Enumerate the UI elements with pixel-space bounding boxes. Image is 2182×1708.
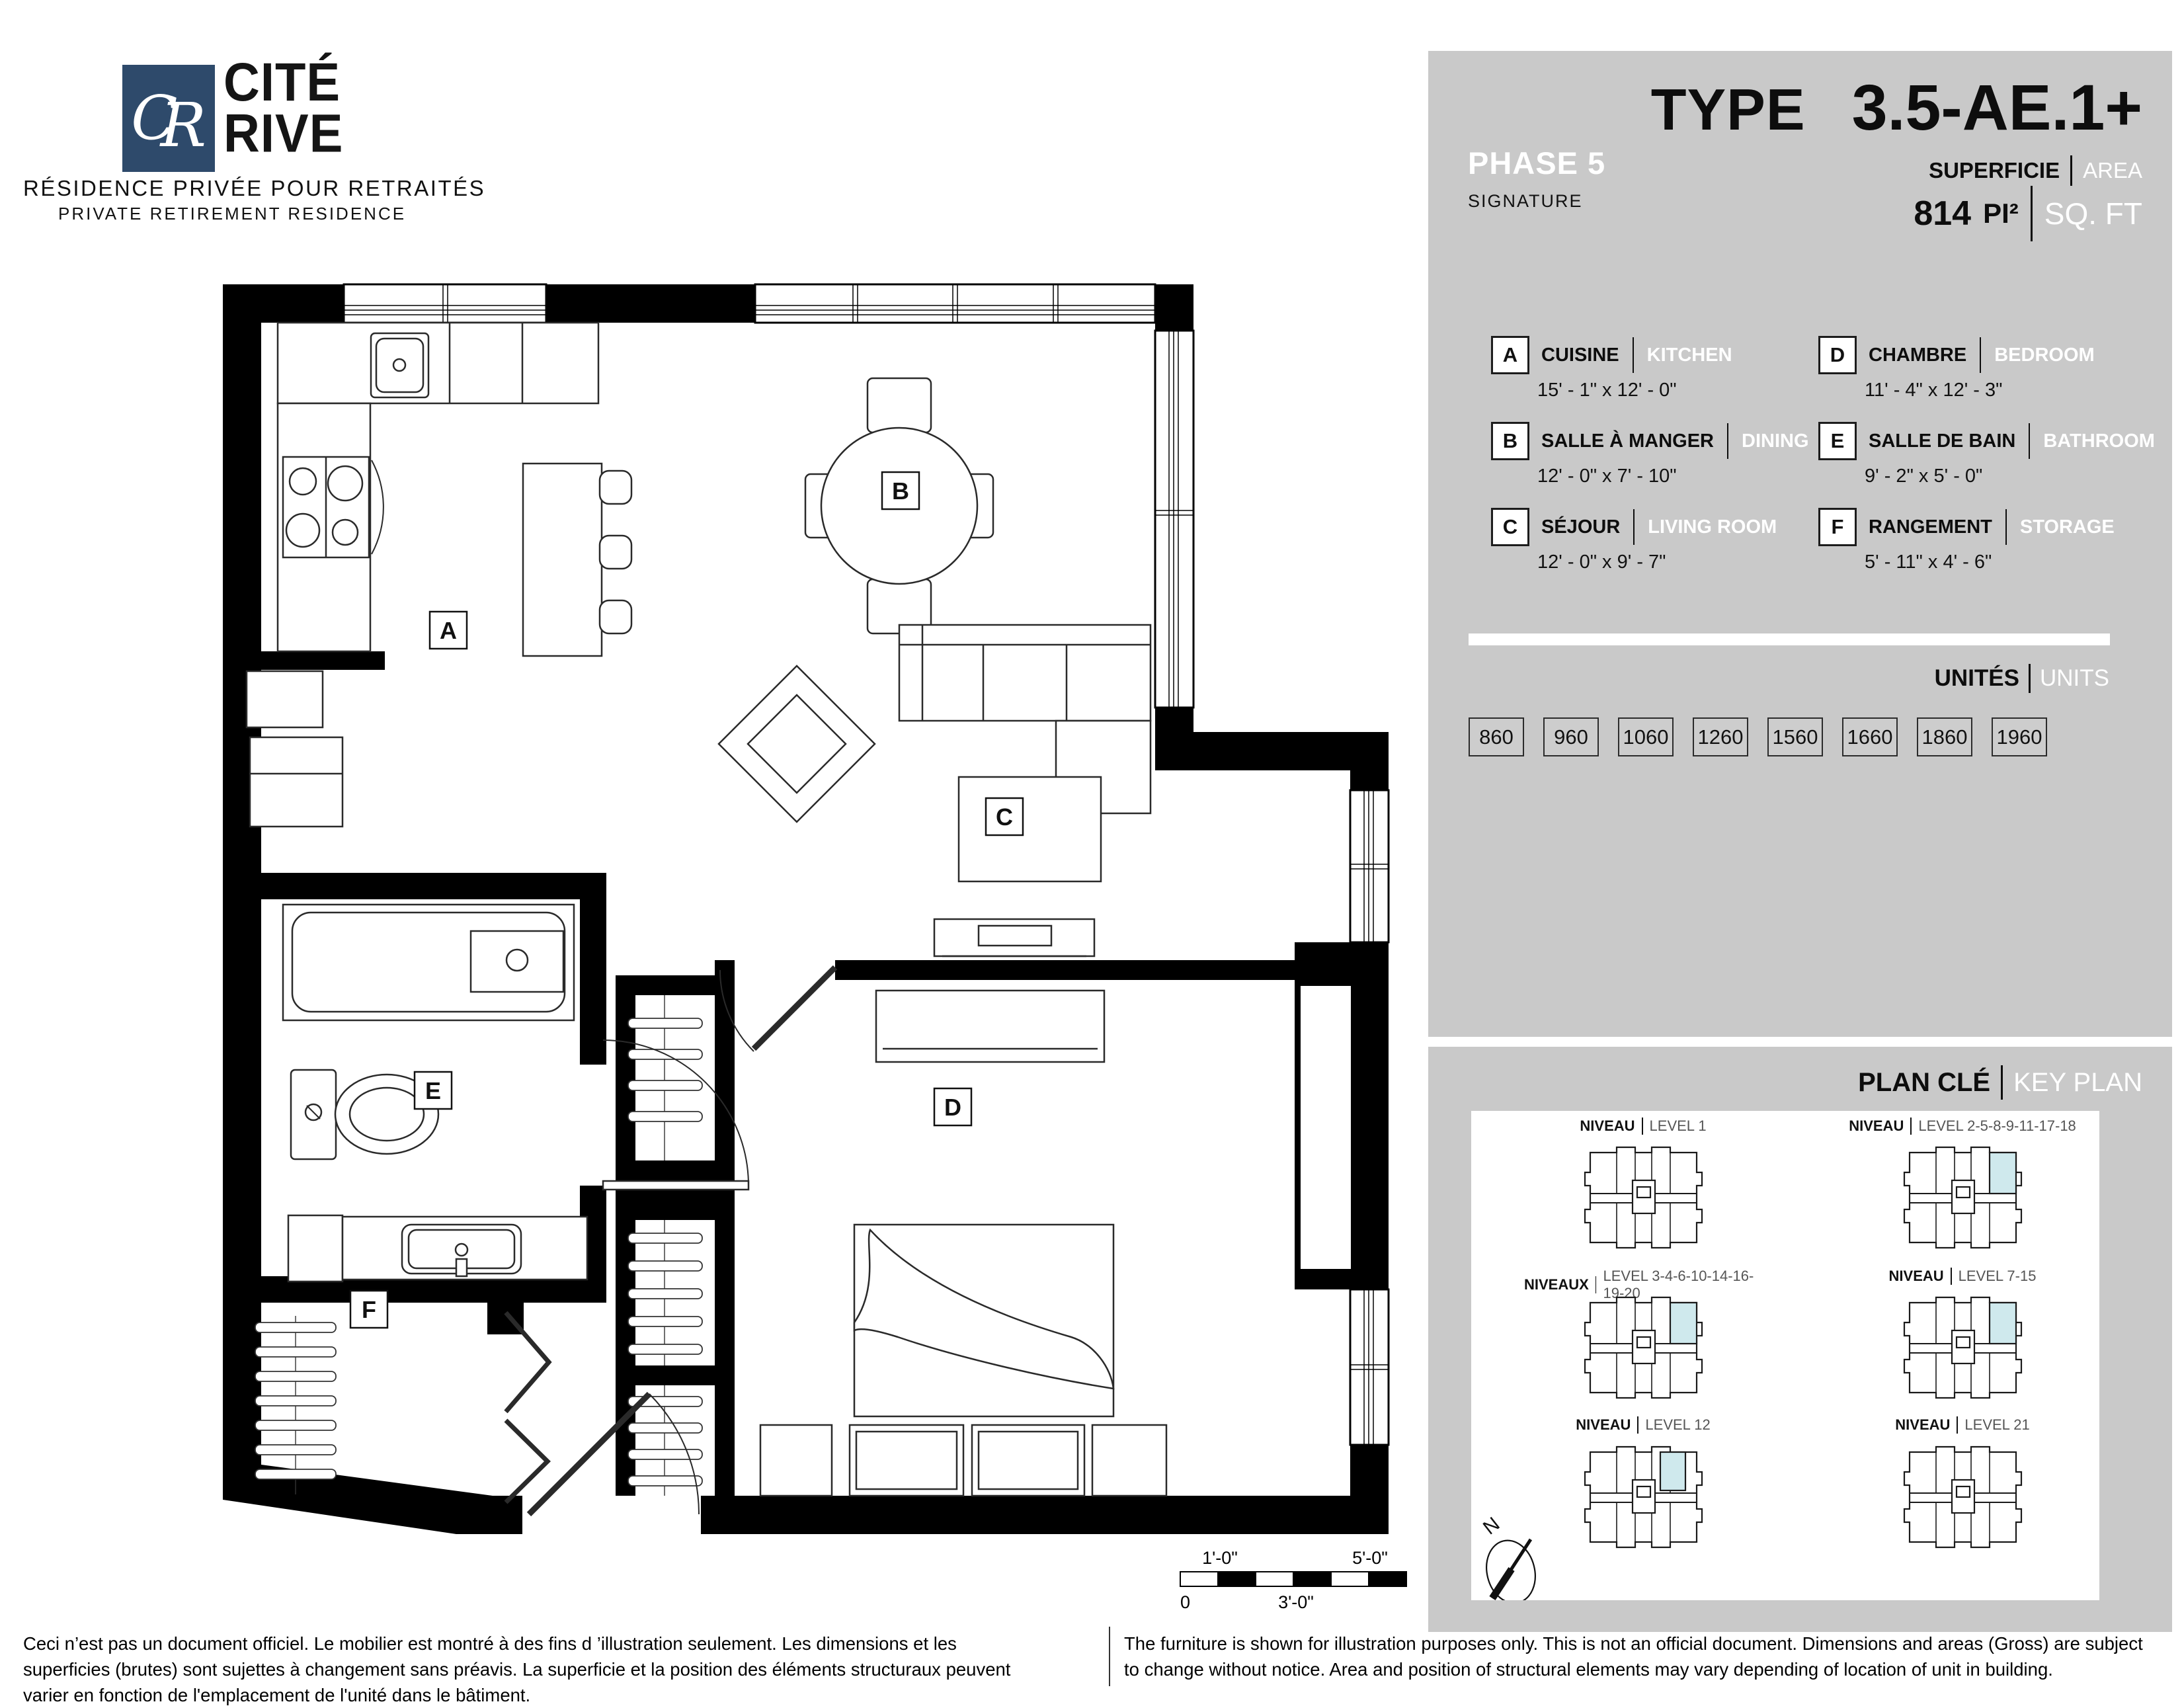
room-label-a: A bbox=[440, 617, 457, 644]
legend-code-box: B bbox=[1491, 422, 1529, 460]
divider bbox=[2029, 423, 2030, 459]
units-label-fr: UNITÉS bbox=[1935, 665, 2019, 692]
north-arrow-icon: N bbox=[1479, 1513, 1542, 1600]
area-unit-fr: PI² bbox=[1983, 198, 2019, 229]
legend-code-box: D bbox=[1818, 336, 1857, 374]
section-divider-bar bbox=[1469, 633, 2110, 645]
area-row: 814 PI² SQ. FT bbox=[1914, 186, 2142, 241]
legend-item-kitchen: A CUISINE KITCHEN bbox=[1491, 336, 1732, 374]
legend-name-en: BEDROOM bbox=[1994, 345, 2094, 366]
keyplan-title-fr: PLAN CLÉ bbox=[1858, 1068, 1990, 1098]
legend-name-fr: CHAMBRE bbox=[1869, 345, 1966, 366]
units-label-en: UNITS bbox=[2040, 665, 2109, 692]
legend-item-bedroom: D CHAMBRE BEDROOM bbox=[1818, 336, 2095, 374]
divider bbox=[1727, 423, 1728, 459]
divider bbox=[1980, 337, 1981, 373]
unit-number: 1660 bbox=[1842, 717, 1898, 756]
logo-word-rive: RIVE bbox=[223, 108, 343, 160]
units-title: UNITÉS UNITS bbox=[1469, 664, 2109, 693]
room-label-d: D bbox=[944, 1094, 961, 1121]
unit-highlight bbox=[1990, 1303, 2016, 1344]
north-label: N bbox=[1479, 1513, 1504, 1539]
unit-type-row: TYPE 3.5-AE.1+ bbox=[1651, 71, 2142, 145]
keyplan-buildings-graphic: N bbox=[1471, 1111, 2099, 1600]
floorplan-sheet: { "logo": { "initial_c": "C", "initial_r… bbox=[0, 0, 2182, 1686]
unit-highlight bbox=[1670, 1303, 1697, 1344]
disclaimer-en: The furniture is shown for illustration … bbox=[1124, 1631, 2156, 1682]
legend-name-fr: RANGEMENT bbox=[1869, 516, 1992, 538]
legend-item-dining: B SALLE À MANGER DINING bbox=[1491, 422, 1809, 460]
floorplan-drawing: A B C D E F 1'-0" 5'-0" 0 3'-0" bbox=[198, 264, 1428, 1620]
unit-number: 960 bbox=[1543, 717, 1599, 756]
scale-label-0: 0 bbox=[1180, 1592, 1190, 1612]
superficie-label-fr: SUPERFICIE bbox=[1929, 158, 2060, 183]
legend-dim: 12' - 0" x 7' - 10" bbox=[1537, 466, 1677, 487]
scale-bar: 1'-0" 5'-0" 0 3'-0" bbox=[1180, 1548, 1406, 1612]
legend-name-en: BATHROOM bbox=[2043, 430, 2155, 452]
type-value: 3.5-AE.1+ bbox=[1852, 71, 2142, 145]
collection-label: SIGNATURE bbox=[1468, 191, 1583, 212]
divider bbox=[1633, 337, 1634, 373]
divider bbox=[2001, 1065, 2003, 1100]
legend-code-box: C bbox=[1491, 508, 1529, 546]
legend-name-fr: CUISINE bbox=[1541, 345, 1619, 366]
legend-name-fr: SALLE À MANGER bbox=[1541, 430, 1714, 452]
legend-name-en: KITCHEN bbox=[1647, 345, 1732, 366]
scale-label-1ft: 1'-0" bbox=[1202, 1548, 1238, 1568]
divider bbox=[1633, 509, 1635, 545]
keyplan-building-level1 bbox=[1585, 1147, 1702, 1248]
logo-tagline-fr: RÉSIDENCE PRIVÉE POUR RETRAITÉS bbox=[23, 176, 485, 201]
legend-name-fr: SALLE DE BAIN bbox=[1869, 430, 2015, 452]
legend-name-en: LIVING ROOM bbox=[1648, 516, 1777, 538]
divider bbox=[2070, 155, 2072, 186]
legend-name-en: DINING bbox=[1742, 430, 1809, 452]
info-panel: PHASE 5 SIGNATURE TYPE 3.5-AE.1+ SUPERFI… bbox=[1428, 51, 2172, 1037]
legend-item-living: C SÉJOUR LIVING ROOM bbox=[1491, 508, 1777, 546]
divider bbox=[2005, 509, 2007, 545]
logo-tagline-en: PRIVATE RETIREMENT RESIDENCE bbox=[58, 204, 406, 224]
area-unit-en: SQ. FT bbox=[2044, 196, 2142, 231]
keyplan-title-en: KEY PLAN bbox=[2013, 1068, 2142, 1098]
unit-number: 1060 bbox=[1618, 717, 1674, 756]
legend-dim: 12' - 0" x 9' - 7" bbox=[1537, 551, 1666, 573]
legend-name-en: STORAGE bbox=[2020, 516, 2115, 538]
legend-dim: 15' - 1" x 12' - 0" bbox=[1537, 380, 1677, 401]
legend-code-box: F bbox=[1818, 508, 1857, 546]
disclaimer-divider bbox=[1109, 1627, 1110, 1686]
unit-number: 1860 bbox=[1917, 717, 1972, 756]
unit-highlight bbox=[1660, 1452, 1685, 1490]
legend-name-fr: SÉJOUR bbox=[1541, 516, 1620, 538]
unit-number: 1960 bbox=[1992, 717, 2047, 756]
legend-item-storage: F RANGEMENT STORAGE bbox=[1818, 508, 2115, 546]
keyplan-building-level21 bbox=[1904, 1447, 2021, 1547]
legend-dim: 9' - 2" x 5' - 0" bbox=[1865, 466, 1982, 487]
legend-code-box: A bbox=[1491, 336, 1529, 374]
room-label-c: C bbox=[996, 803, 1013, 831]
unit-highlight bbox=[1990, 1153, 2016, 1194]
legend-code-box: E bbox=[1818, 422, 1857, 460]
divider bbox=[2031, 186, 2033, 241]
legend-dim: 5' - 11" x 4' - 6" bbox=[1865, 551, 1992, 573]
logo-mark: C R bbox=[122, 65, 215, 172]
room-label-f: F bbox=[362, 1296, 376, 1323]
logo-initial-r: R bbox=[161, 95, 206, 156]
superficie-row: SUPERFICIE AREA bbox=[1929, 155, 2142, 186]
unit-number: 1260 bbox=[1693, 717, 1748, 756]
room-label-b: B bbox=[892, 477, 909, 505]
room-label-e: E bbox=[425, 1077, 441, 1104]
divider bbox=[2029, 664, 2031, 693]
legend-dim: 11' - 4" x 12' - 3" bbox=[1865, 380, 2002, 401]
unit-number: 1560 bbox=[1767, 717, 1823, 756]
logo-wordmark: CITÉ RIVE bbox=[223, 57, 343, 160]
area-value: 814 bbox=[1914, 194, 1971, 233]
scale-label-3ft: 3'-0" bbox=[1278, 1592, 1314, 1612]
logo-word-cite: CITÉ bbox=[223, 57, 343, 108]
unit-number: 860 bbox=[1469, 717, 1524, 756]
phase-label: PHASE 5 bbox=[1468, 145, 1605, 181]
scale-label-5ft: 5'-0" bbox=[1352, 1548, 1388, 1568]
keyplan-title: PLAN CLÉ KEY PLAN bbox=[1858, 1065, 2142, 1100]
disclaimer-fr: Ceci n’est pas un document officiel. Le … bbox=[23, 1631, 1022, 1708]
area-label-en: AREA bbox=[2083, 158, 2142, 183]
legend-item-bathroom: E SALLE DE BAIN BATHROOM bbox=[1818, 422, 2155, 460]
type-label: TYPE bbox=[1651, 76, 1806, 143]
